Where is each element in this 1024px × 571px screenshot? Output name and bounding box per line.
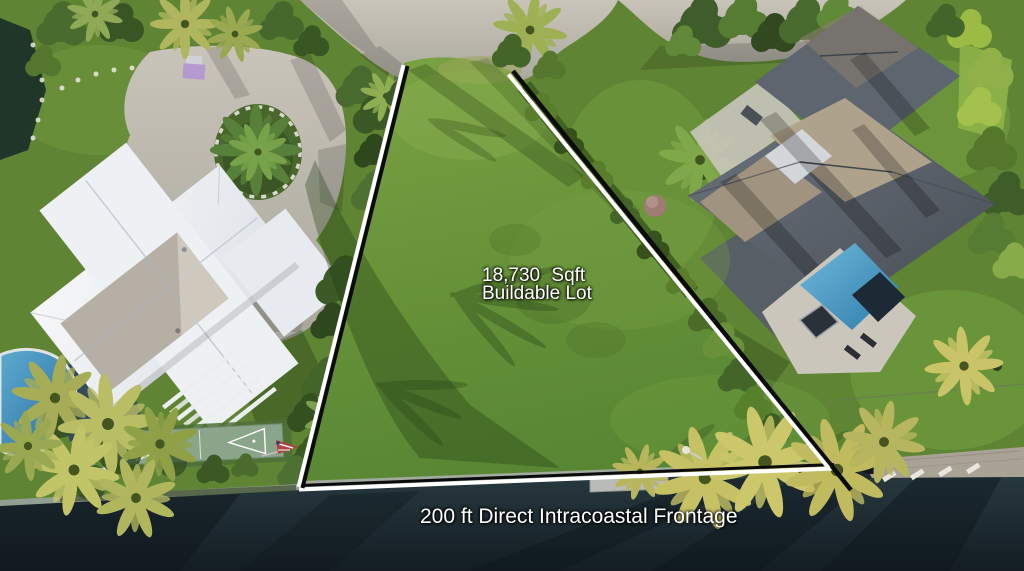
lot-size-label: 18,730 Sqft Buildable Lot bbox=[482, 267, 592, 303]
frontage-label: 200 ft Direct Intracoastal Frontage bbox=[420, 505, 738, 529]
purple-bench bbox=[182, 63, 205, 79]
buildable-lot-text: Buildable Lot bbox=[482, 285, 592, 303]
aerial-photo: 18,730 Sqft Buildable Lot 200 ft Direct … bbox=[0, 0, 1024, 571]
